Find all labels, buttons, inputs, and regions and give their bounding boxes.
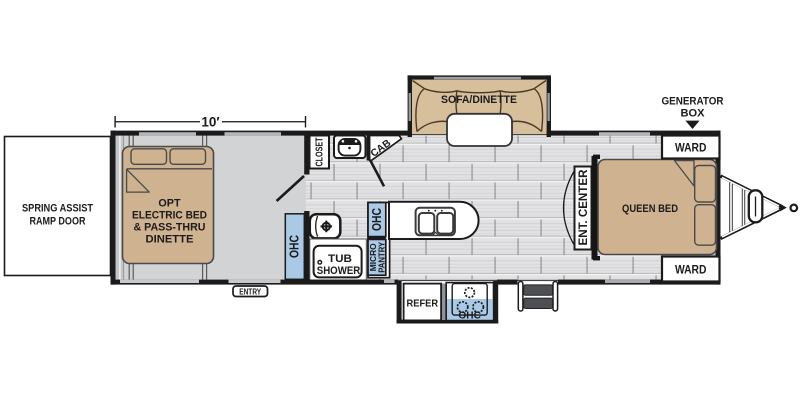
svg-text:& PASS-THRU: & PASS-THRU — [134, 222, 206, 234]
svg-text:GENERATOR: GENERATOR — [662, 96, 724, 108]
svg-text:OHC: OHC — [369, 208, 384, 231]
svg-text:TUB: TUB — [328, 253, 352, 265]
svg-text:OHC: OHC — [287, 235, 302, 258]
svg-text:DINETTE: DINETTE — [146, 234, 194, 246]
svg-text:ELECTRIC BED: ELECTRIC BED — [132, 210, 207, 222]
svg-text:BOX: BOX — [681, 108, 705, 120]
svg-text:REFER: REFER — [407, 299, 439, 310]
svg-text:RAMP DOOR: RAMP DOOR — [30, 216, 86, 228]
svg-text:10′: 10′ — [201, 115, 219, 130]
svg-text:CLOSET: CLOSET — [315, 137, 326, 167]
svg-text:SHOWER: SHOWER — [317, 265, 361, 277]
svg-text:OHC: OHC — [458, 311, 481, 322]
svg-text:QUEEN BED: QUEEN BED — [622, 203, 678, 215]
svg-text:WARD: WARD — [675, 140, 707, 154]
svg-text:SPRING ASSIST: SPRING ASSIST — [22, 203, 93, 215]
svg-text:SOFA/DINETTE: SOFA/DINETTE — [441, 94, 517, 106]
svg-text:ENTRY: ENTRY — [239, 287, 262, 296]
svg-text:OPT: OPT — [158, 198, 181, 210]
svg-text:ENT. CENTER: ENT. CENTER — [576, 169, 590, 245]
svg-text:WARD: WARD — [675, 262, 707, 276]
svg-text:PANTRY: PANTRY — [377, 241, 386, 273]
